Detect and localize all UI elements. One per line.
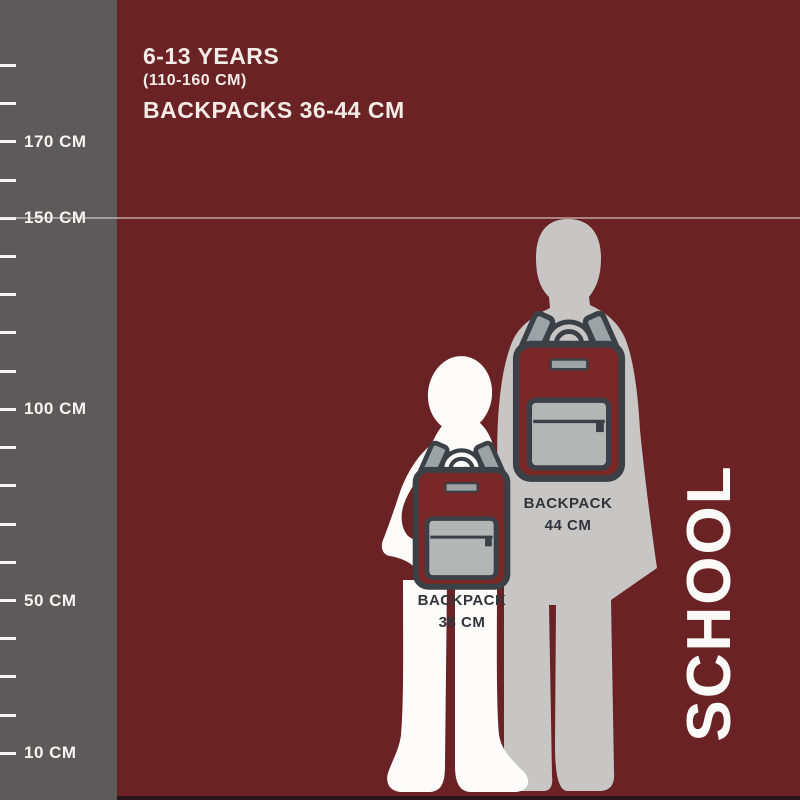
backpack-44-label-word: BACKPACK [498,493,638,515]
backpack-44-patch [551,360,588,370]
backpack-38-label-size: 38 CM [392,612,532,634]
backpack-44-label: BACKPACK 44 CM [498,493,638,537]
backpack-38-patch [446,483,478,491]
backpack-44-illustration [511,297,627,486]
side-text: SCHOOL [675,433,745,773]
backpack-44-pocket [529,400,608,468]
backpack-44-label-size: 44 CM [498,515,638,537]
height-range-text: (110-160 CM) [143,72,405,90]
backpack-range-text: BACKPACKS 36-44 CM [143,98,405,123]
bottom-bar [117,796,800,800]
backpack-38-pocket [427,519,496,578]
backpack-38-zipper-pull [485,538,492,546]
backpack-38-label-word: BACKPACK [392,590,532,612]
header: 6-13 YEARS (110-160 CM) BACKPACKS 36-44 … [143,44,405,123]
backpack-38-label: BACKPACK 38 CM [392,590,532,634]
age-range-text: 6-13 YEARS [143,44,405,69]
backpack-44-zipper-pull [596,422,604,432]
backpack-38-illustration [411,429,512,593]
size-guide-infographic: 10 CM50 CM100 CM150 CM170 CM 6-13 YEARS … [0,0,800,800]
